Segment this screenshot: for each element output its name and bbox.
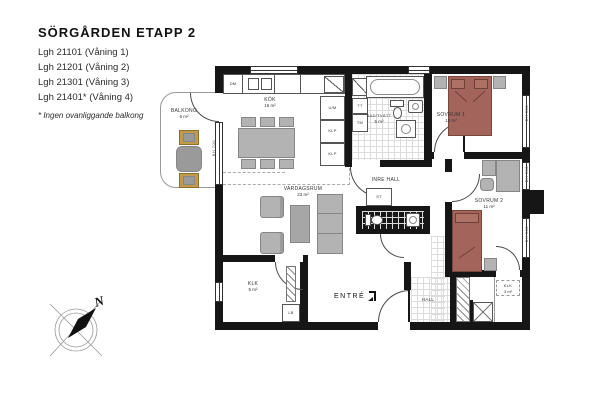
sill-height-label: BH 500 (524, 226, 529, 242)
entrance-door-icon (368, 291, 376, 301)
dining-chair (260, 159, 275, 169)
room-area: 3 m² (382, 218, 406, 224)
wardrobe-label: KLP (320, 151, 345, 156)
room-label-hall: HALL (413, 297, 443, 303)
door-opening (445, 172, 452, 202)
pillow (451, 79, 465, 89)
dryer-label: TT (352, 103, 368, 108)
wc-sink-drain (409, 216, 417, 224)
shaft (473, 302, 493, 322)
room-label-sovrum2: SOVRUM 2 11 m² (466, 198, 512, 210)
footnote: * Ingen ovanliggande balkong (38, 111, 258, 120)
lb-label: LB (282, 310, 300, 315)
door-opening (352, 160, 380, 167)
balcony-chair-seat (183, 133, 195, 142)
desk (496, 160, 520, 192)
door-arc (380, 234, 404, 258)
room-label-inre-hall: INRE HALL (358, 177, 414, 183)
sofa-cushion-line (318, 233, 342, 234)
door-opening (275, 255, 303, 262)
room-label-balkong: BALKONG 6 m² (163, 108, 205, 120)
sill-height-label: BH 500 (524, 166, 529, 182)
desk-chair (480, 178, 494, 191)
nightstand (493, 76, 506, 89)
compass-rose: N (42, 294, 110, 362)
washing-machine-drum (401, 124, 411, 134)
nightstand (434, 76, 447, 89)
dishwasher-label: DM (225, 81, 241, 86)
desk-extension (482, 160, 496, 176)
dining-chair (241, 117, 256, 127)
sill-height-label: BH 500 (524, 105, 529, 121)
entrance-door-arc (378, 290, 410, 322)
room-label-klk3: KLK 3 m² (494, 283, 522, 295)
room-name: BAD/TVÄTT (367, 113, 392, 118)
counter-divider (242, 75, 243, 93)
balcony-window (215, 122, 223, 185)
wall (345, 74, 352, 167)
room-name: WC (390, 212, 397, 217)
apartment-line: Lgh 21101 (Våning 1) (38, 45, 258, 60)
door-opening (496, 270, 520, 277)
compass-north-label: N (91, 294, 106, 310)
room-name: HALL (422, 297, 434, 302)
dining-table (238, 128, 295, 158)
hall-wardrobe (456, 277, 470, 322)
sill-height-label: BH 700 (211, 140, 216, 156)
entre-text: ENTRÉ (334, 293, 365, 300)
room-name: KLK (504, 283, 512, 288)
wall (404, 262, 411, 290)
counter-divider (300, 75, 301, 93)
room-label-bad: BAD/TVÄTT 5 m² (366, 113, 392, 125)
wall (522, 190, 544, 214)
door-arc (496, 246, 520, 270)
oven-micro-label: U/M (320, 105, 345, 110)
balcony-table (176, 146, 202, 172)
bathtub-basin (370, 79, 420, 95)
sink-drain (412, 103, 419, 110)
room-label-vardagsrum: VARDAGSRUM 23 m² (280, 186, 326, 198)
room-area: 12 m² (432, 118, 470, 124)
toilet-bowl (393, 107, 402, 119)
nightstand (484, 258, 497, 271)
armchair (260, 196, 284, 218)
room-area: 5 m² (234, 287, 272, 293)
floor-plan-page: SÖRGÅRDEN ETAPP 2 Lgh 21101 (Våning 1) L… (0, 0, 600, 400)
door-opening (434, 152, 464, 159)
entrance-door-leaf (408, 290, 410, 322)
room-label-kok: KÖK 16 m² (250, 97, 290, 109)
room-area: 16 m² (250, 103, 290, 109)
room-area: 5 m² (366, 119, 392, 125)
dining-chair (260, 117, 275, 127)
wall (424, 74, 432, 160)
room-area: 3 m² (494, 289, 522, 295)
dashed-line (223, 184, 350, 185)
toilet-tank (390, 100, 404, 107)
entrance-opening (378, 322, 410, 330)
window (408, 66, 430, 74)
sink-basin (261, 78, 272, 90)
room-label-wc: WC 3 m² (382, 212, 406, 224)
washer-label: TM (352, 120, 368, 125)
corner-cabinet (324, 76, 344, 93)
room-area: 6 m² (163, 114, 205, 120)
sofa-cushion-line (318, 213, 342, 214)
room-name: INRE HALL (372, 177, 401, 183)
room-label-klk5: KLK 5 m² (234, 281, 272, 293)
armchair (260, 232, 284, 254)
pillow (474, 79, 488, 89)
wall (215, 322, 530, 330)
dining-chair (279, 159, 294, 169)
dining-chair (279, 117, 294, 127)
balcony-chair-seat (183, 176, 195, 185)
window (250, 66, 298, 74)
dashed-line (223, 172, 285, 173)
page-title: SÖRGÅRDEN ETAPP 2 (38, 25, 258, 40)
coffee-table (290, 205, 310, 243)
room-label-sovrum1: SOVRUM 1 12 m² (432, 112, 470, 124)
cleaning-closet-label: ST (366, 194, 392, 199)
sofa (317, 194, 343, 254)
entre-label: ENTRÉ (334, 291, 376, 301)
room-area: 11 m² (466, 204, 512, 210)
counter-divider (274, 75, 275, 93)
wardrobe-label: KLP (320, 128, 345, 133)
room-area: 23 m² (280, 192, 326, 198)
window (215, 282, 223, 302)
pillow (455, 213, 479, 223)
window (522, 95, 530, 148)
sink-basin (248, 78, 259, 90)
dining-chair (241, 159, 256, 169)
hanger-rail (286, 266, 296, 302)
